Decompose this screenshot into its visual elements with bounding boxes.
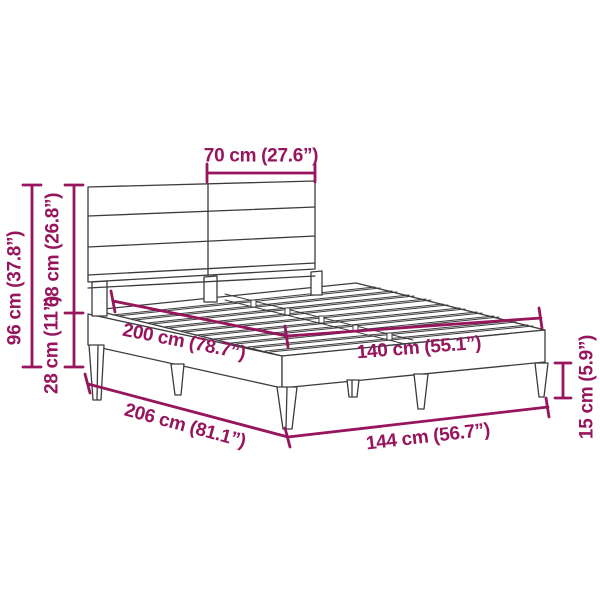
bed-frame-dimension-diagram: 70 cm (27.6”) 96 cm (37.8”) 68 cm (26.8”… — [0, 0, 600, 600]
headboard-panel — [88, 181, 315, 282]
leg-foot-middle — [414, 374, 428, 409]
bed-frame-drawing — [88, 181, 548, 429]
dim-headboard-panel-width: 70 cm (27.6”) — [204, 146, 318, 183]
headboard — [88, 181, 315, 288]
dim-label-overall-length: 206 cm (81.1”) — [122, 400, 248, 453]
dim-label-leg-height: 15 cm (5.9”) — [577, 335, 598, 439]
headboard-post-middle — [204, 276, 217, 302]
dim-overall-height: 96 cm (37.8”) — [5, 185, 42, 367]
leg-side-middle — [171, 364, 184, 395]
dim-label-headboard-height: 68 cm (26.8”) — [43, 193, 64, 307]
dim-overall-width: 144 cm (56.7”) — [285, 398, 549, 454]
dim-frame-height: 28 cm (11”) — [42, 296, 63, 394]
dim-label-overall-height: 96 cm (37.8”) — [5, 231, 26, 345]
dim-overall-length: 206 cm (81.1”) — [85, 374, 288, 452]
dim-headboard-height-line — [65, 185, 83, 367]
dim-overall-height-line — [23, 185, 41, 367]
dim-headboard-panel-width-line — [207, 164, 315, 182]
dim-leg-height: 15 cm (5.9”) — [555, 335, 598, 439]
leg-head-left — [89, 345, 104, 400]
leg-foot-center — [347, 380, 359, 397]
dim-label-headboard-panel-width: 70 cm (27.6”) — [204, 146, 318, 167]
dim-label-frame-height: 28 cm (11”) — [42, 296, 63, 394]
headboard-post-left — [92, 281, 107, 316]
leg-front-corner — [277, 387, 297, 429]
headboard-post-right — [311, 271, 322, 295]
leg-foot-right — [535, 363, 548, 397]
dim-leg-height-line — [555, 363, 571, 398]
dimension-diagram-page: 70 cm (27.6”) 96 cm (37.8”) 68 cm (26.8”… — [0, 0, 600, 600]
